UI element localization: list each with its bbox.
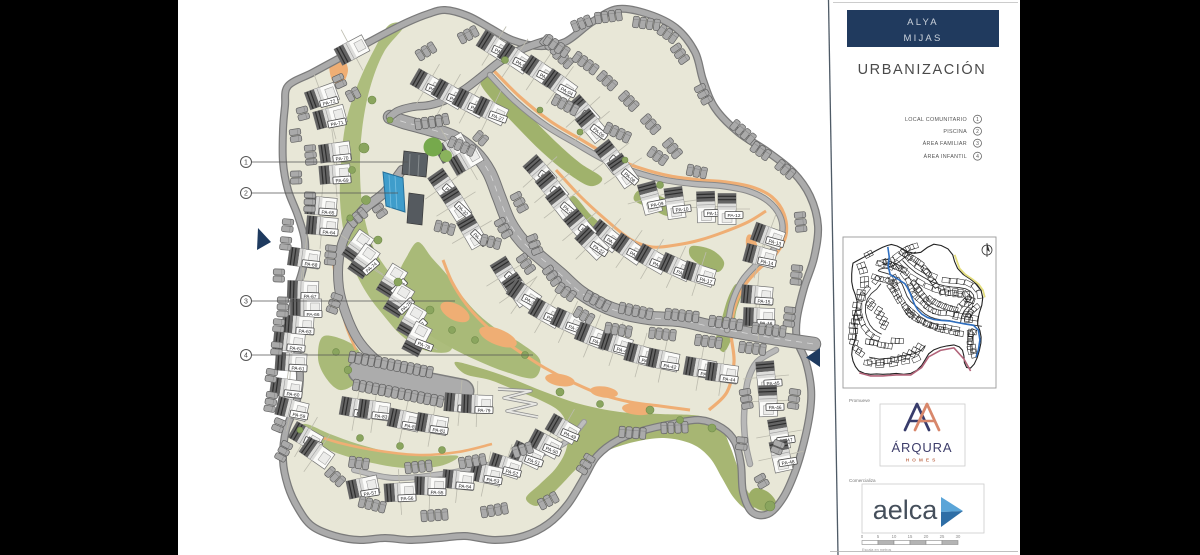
svg-text:PA-55: PA-55 <box>430 490 443 496</box>
svg-text:ÁRQURA: ÁRQURA <box>891 440 952 455</box>
svg-text:LOCAL COMUNITARIO: LOCAL COMUNITARIO <box>905 117 967 123</box>
svg-text:Promueve: Promueve <box>849 398 870 403</box>
svg-text:PA-54: PA-54 <box>458 484 472 491</box>
svg-text:HOMES: HOMES <box>906 458 939 464</box>
svg-text:1: 1 <box>976 117 979 123</box>
svg-text:1: 1 <box>244 160 248 167</box>
svg-text:PA-62: PA-62 <box>289 346 303 353</box>
svg-text:URBANIZACIÓN: URBANIZACIÓN <box>858 61 987 78</box>
svg-text:PA-15: PA-15 <box>757 299 771 306</box>
svg-text:3: 3 <box>244 299 248 306</box>
svg-text:PISCINA: PISCINA <box>943 129 967 135</box>
svg-text:2: 2 <box>244 191 248 198</box>
svg-text:ÁREA INFANTIL: ÁREA INFANTIL <box>924 153 967 160</box>
svg-text:MIJAS: MIJAS <box>904 33 943 44</box>
svg-text:10: 10 <box>892 534 897 539</box>
svg-text:PA-65: PA-65 <box>321 210 335 217</box>
svg-text:PA-79: PA-79 <box>477 408 490 414</box>
svg-text:aelca: aelca <box>873 495 939 525</box>
svg-text:PA-46: PA-46 <box>768 405 781 411</box>
svg-text:PA-56: PA-56 <box>400 496 414 503</box>
svg-text:Comercializa: Comercializa <box>849 478 876 483</box>
svg-text:PA-69: PA-69 <box>335 178 349 185</box>
svg-text:PA-12: PA-12 <box>728 213 741 219</box>
svg-text:4: 4 <box>976 154 979 160</box>
svg-text:PA-64: PA-64 <box>322 230 336 237</box>
svg-text:15: 15 <box>908 534 913 539</box>
svg-text:20: 20 <box>924 534 929 539</box>
svg-text:4: 4 <box>244 353 248 360</box>
svg-text:25: 25 <box>940 534 945 539</box>
svg-text:PA-61: PA-61 <box>291 366 305 373</box>
svg-text:ÁREA FAMILIAR: ÁREA FAMILIAR <box>923 140 967 147</box>
svg-text:3: 3 <box>976 141 979 147</box>
svg-text:ALYA: ALYA <box>907 17 939 28</box>
svg-text:30: 30 <box>956 534 961 539</box>
svg-text:2: 2 <box>976 129 979 135</box>
